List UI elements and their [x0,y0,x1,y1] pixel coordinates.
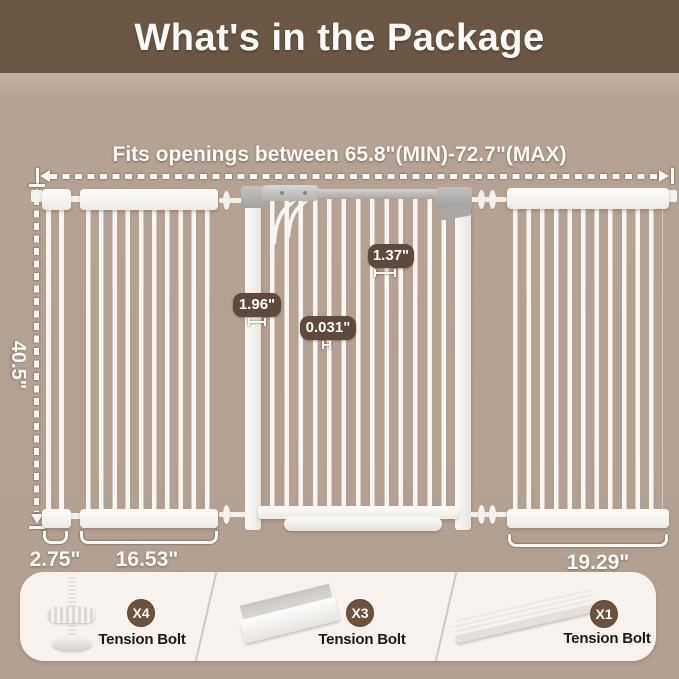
door-bars [270,199,456,512]
wall-cup-left [31,190,42,202]
width-label-small: 2.75" [20,548,90,572]
arrow-right-icon [659,170,669,182]
post-width-tick [248,318,266,326]
fits-openings-label: Fits openings between 65.8"(MIN)-72.7"(M… [0,143,679,167]
item-label: Tension Bolt [94,631,190,648]
threshold-ramp [284,517,442,531]
tension-bolt-base-disc [52,637,92,651]
gate-height-label: 40.5" [5,330,29,400]
item-divider [193,572,220,661]
extension-connector-bottom [71,513,80,519]
arrow-left-icon [40,170,50,182]
width-bracket-left [80,531,218,544]
quantity-badge: X3 [346,599,374,627]
bar-thickness-tick [322,341,331,349]
bar-gap-tick [374,269,396,277]
right-extension-bars [513,203,663,515]
tension-bolt-disc [478,505,485,524]
left-extension-top-rail [80,189,218,210]
gate-frame-post-right [455,194,471,530]
width-label-left: 16.53" [107,548,187,572]
dashed-line-vertical [34,198,39,512]
arrow-end-bar-right [671,168,674,184]
door-top-rail [316,189,442,198]
arrow-end-bar-left [36,168,39,184]
tension-bolt-disc [223,505,230,524]
small-extension-bottom-rail [42,509,71,528]
gate-bar [59,203,64,515]
screw-icon [303,191,307,195]
left-extension-bars [86,203,214,515]
right-extension-top-rail [507,188,669,209]
bar-gap-badge: 1.37" [368,244,414,268]
bar-thickness-badge: 0.031" [300,316,356,340]
wall-cup-right [668,190,677,202]
right-extension-bottom-rail [507,509,669,528]
gate-bar [46,203,51,515]
left-extension-bottom-rail [80,509,218,528]
tension-bolt-disc [223,191,230,210]
dashed-line-horizontal [50,174,660,179]
tension-bolt-knurl-disc [48,607,95,623]
item-label: Tension Bolt [314,631,410,648]
header-band: What's in the Package [0,0,679,73]
arrow-end-bar-top [29,184,45,187]
gate-frame-post-left [245,194,261,530]
screw-icon [280,191,284,195]
tension-bolt-disc [489,505,496,524]
extension-connector-top [71,196,80,202]
quantity-badge: X1 [590,600,618,628]
width-bracket-right [508,534,668,547]
tension-bolt-disc [489,190,496,209]
small-extension-top-rail [42,189,71,210]
product-infographic: What's in the Package Fits openings betw… [0,0,679,679]
width-bracket-small [43,531,68,544]
post-width-badge: 1.96" [233,293,281,317]
latch-handle [262,185,319,201]
page-title: What's in the Package [0,0,679,73]
tension-bolt-disc [478,190,485,209]
item-label: Tension Bolt [559,630,655,647]
quantity-badge: X4 [127,599,155,627]
